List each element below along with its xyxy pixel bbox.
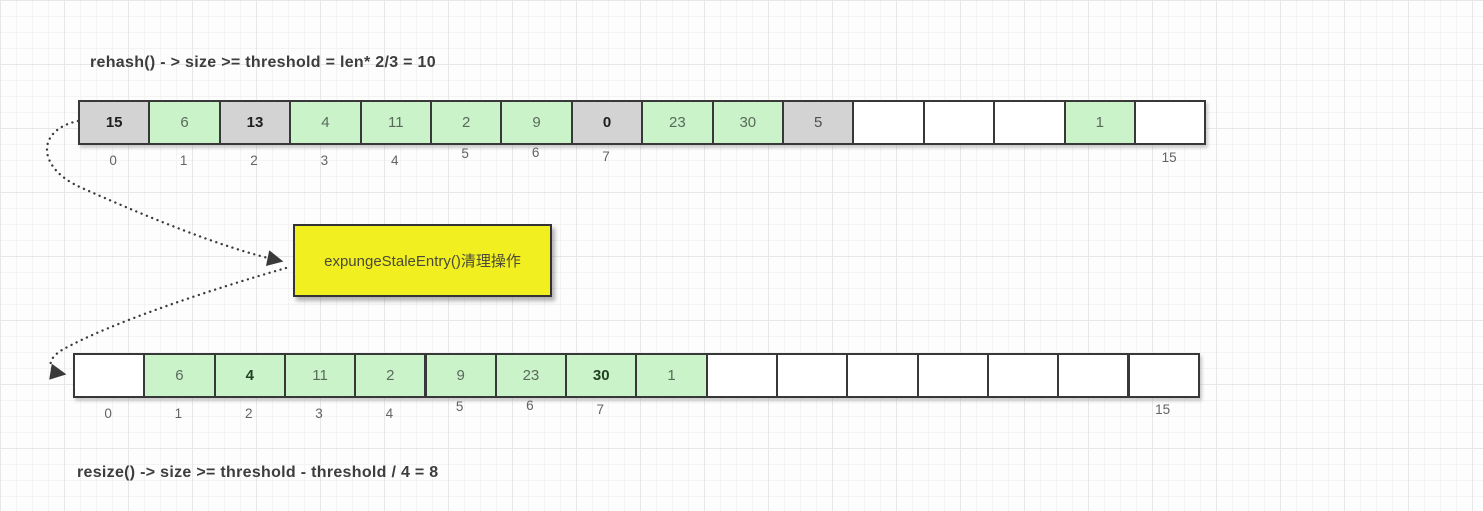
resize-formula-text: resize() -> size >= threshold - threshol…: [77, 464, 438, 482]
top-index-label-6: 6: [532, 145, 540, 160]
bottom-slot-7: 30: [565, 353, 637, 398]
top-slot-9: 30: [712, 100, 784, 145]
top-index-label-15: 15: [1162, 150, 1177, 165]
bottom-slot-15: [1128, 353, 1200, 398]
rehash-formula-text: rehash() - > size >= threshold = len* 2/…: [90, 54, 436, 72]
bottom-slot-14: [1057, 353, 1129, 398]
bottom-index-label-4: 4: [386, 406, 394, 421]
top-index-label-2: 2: [250, 153, 258, 168]
top-slot-7: 0: [571, 100, 643, 145]
top-slot-2: 13: [219, 100, 291, 145]
bottom-slot-4: 2: [354, 353, 426, 398]
bottom-index-label-5: 5: [456, 399, 464, 414]
expunge-stale-entry-callout: expungeStaleEntry()清理操作: [293, 224, 552, 297]
bottom-index-label-2: 2: [245, 406, 253, 421]
bottom-slot-10: [776, 353, 848, 398]
bottom-slot-12: [917, 353, 989, 398]
top-slot-14: 1: [1064, 100, 1136, 145]
top-slot-0: 15: [78, 100, 150, 145]
bottom-slot-3: 11: [284, 353, 356, 398]
top-slot-5: 2: [430, 100, 502, 145]
top-index-label-4: 4: [391, 153, 399, 168]
bottom-slot-1: 6: [143, 353, 215, 398]
bottom-index-label-6: 6: [526, 398, 534, 413]
bottom-slot-2: 4: [214, 353, 286, 398]
bottom-index-label-7: 7: [596, 402, 604, 417]
bottom-index-label-15: 15: [1155, 402, 1170, 417]
top-slot-6: 9: [500, 100, 572, 145]
top-slot-4: 11: [360, 100, 432, 145]
bottom-slot-11: [846, 353, 918, 398]
top-slot-1: 6: [148, 100, 220, 145]
top-slot-13: [993, 100, 1065, 145]
flow-arrows: [0, 0, 1483, 511]
bottom-slot-5: 9: [425, 353, 497, 398]
top-index-label-5: 5: [461, 146, 469, 161]
top-slot-15: [1134, 100, 1206, 145]
bottom-index-label-3: 3: [315, 406, 323, 421]
top-slot-10: 5: [782, 100, 854, 145]
top-slot-8: 23: [641, 100, 713, 145]
top-index-label-7: 7: [602, 149, 610, 164]
top-index-label-0: 0: [109, 153, 117, 168]
bottom-slot-9: [706, 353, 778, 398]
bottom-slot-6: 23: [495, 353, 567, 398]
bottom-slot-13: [987, 353, 1059, 398]
hash-table-before-rehash: 15613411290233051: [78, 100, 1206, 145]
bottom-slot-0: [73, 353, 145, 398]
top-slot-12: [923, 100, 995, 145]
bottom-index-label-1: 1: [175, 406, 183, 421]
top-index-label-3: 3: [321, 153, 329, 168]
top-slot-11: [852, 100, 924, 145]
top-index-label-1: 1: [180, 153, 188, 168]
bottom-slot-8: 1: [635, 353, 707, 398]
top-slot-3: 4: [289, 100, 361, 145]
hash-table-after-rehash: 64112923301: [73, 353, 1200, 398]
diagram-canvas: rehash() - > size >= threshold = len* 2/…: [0, 0, 1483, 511]
bottom-index-label-0: 0: [104, 406, 112, 421]
